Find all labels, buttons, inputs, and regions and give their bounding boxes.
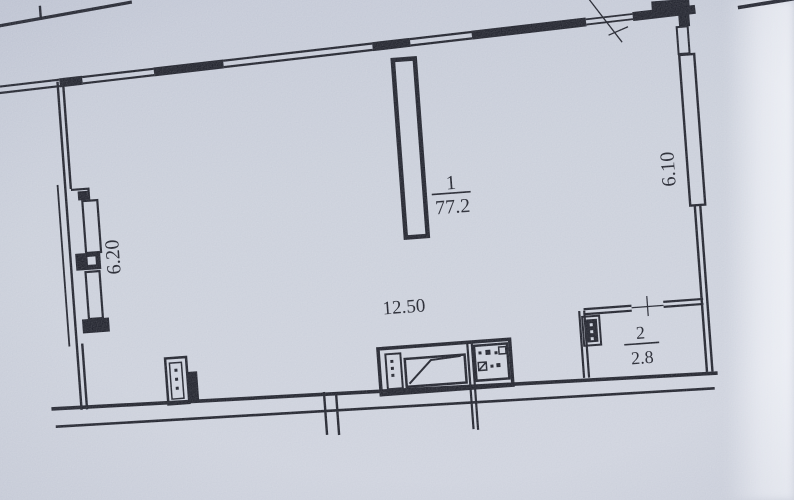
floor-plan-photo: 1 77.2 2 2.8 12.50 6.20 6.10 <box>0 0 794 500</box>
floor-plan-canvas: 1 77.2 2 2.8 12.50 6.20 6.10 <box>0 0 794 500</box>
paper-texture <box>0 0 794 500</box>
